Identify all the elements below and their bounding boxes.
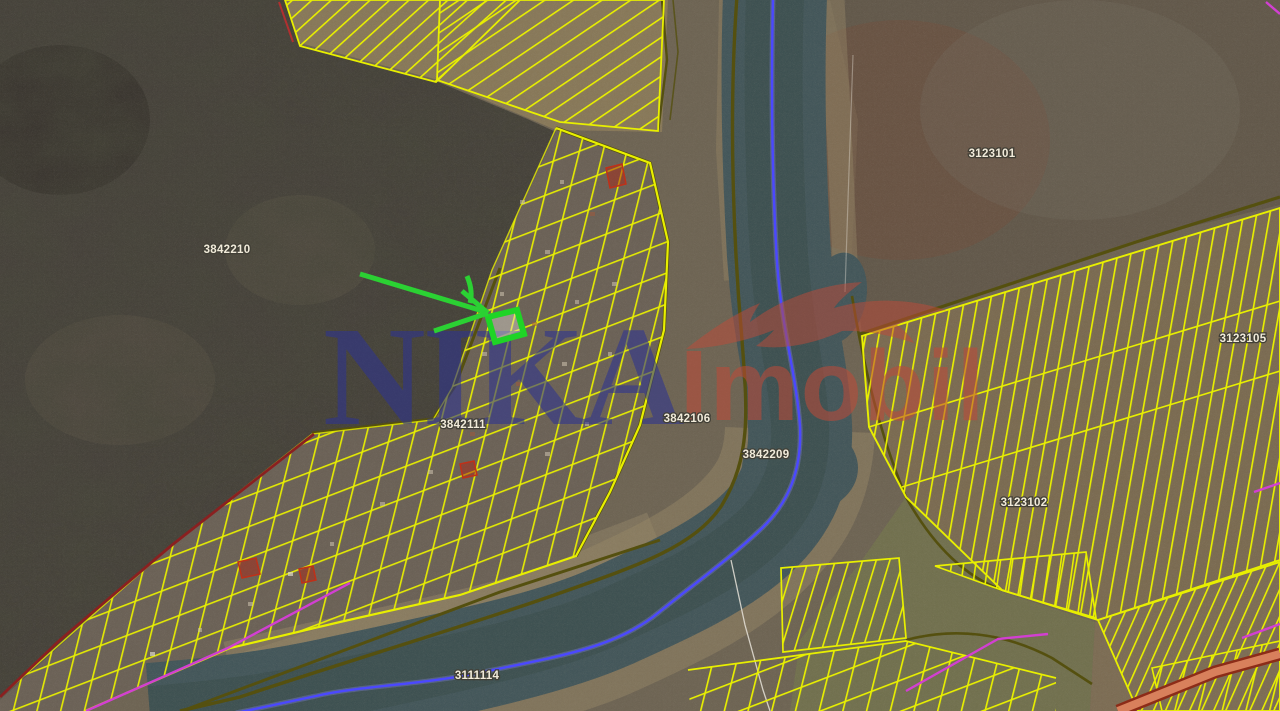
map-canvas[interactable]: NIKA Imobil 3842210 3123101 3842111 3842… [0,0,1280,711]
parcel-label: 3842210 [204,244,251,256]
parcel-label: 3842209 [743,449,790,461]
selected-parcel[interactable] [488,310,524,342]
watermark-secondary-text: Imobil [680,330,986,442]
parcel-label: 3842111 [440,419,486,431]
parcel-label: 3842106 [664,413,711,425]
watermark: NIKA Imobil [323,282,986,455]
parcel-label: 3123105 [1220,333,1267,345]
parcel-label: 3111114 [455,670,500,682]
parcel-label: 3123102 [1001,497,1048,509]
map-viewport[interactable]: NIKA Imobil 3842210 3123101 3842111 3842… [0,0,1280,711]
parcel-label: 3123101 [969,148,1016,160]
